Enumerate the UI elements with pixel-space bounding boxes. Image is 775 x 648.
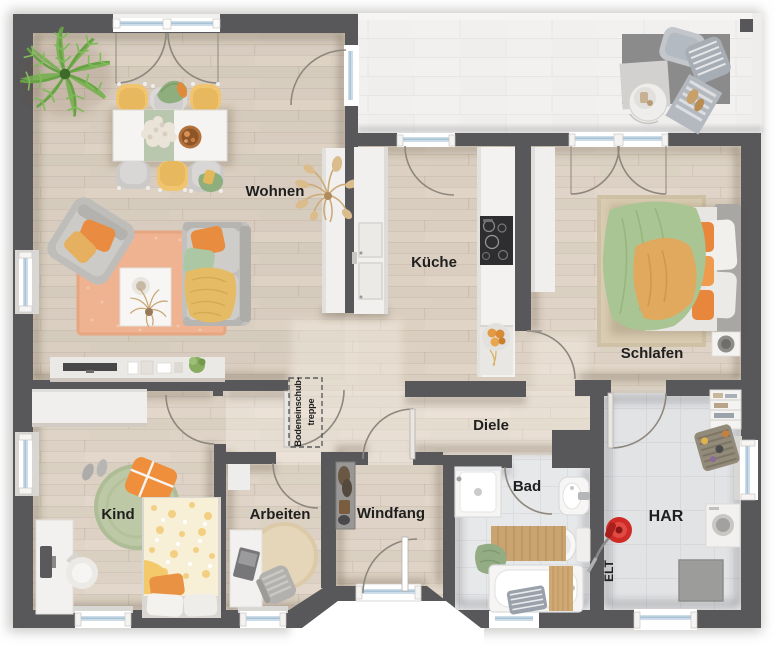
svg-text:Wohnen: Wohnen: [246, 183, 305, 200]
svg-text:treppe: treppe: [306, 398, 316, 425]
svg-text:Küche: Küche: [411, 254, 457, 271]
svg-text:Diele: Diele: [473, 417, 509, 434]
svg-text:Arbeiten: Arbeiten: [250, 506, 311, 523]
svg-text:Windfang: Windfang: [357, 505, 425, 522]
svg-text:Bad: Bad: [513, 478, 541, 495]
svg-text:Kind: Kind: [101, 506, 134, 523]
svg-text:Bodeneinschub-: Bodeneinschub-: [293, 377, 303, 446]
svg-text:ELT: ELT: [602, 559, 616, 581]
svg-text:HAR: HAR: [649, 508, 684, 525]
svg-text:Schlafen: Schlafen: [621, 345, 684, 362]
